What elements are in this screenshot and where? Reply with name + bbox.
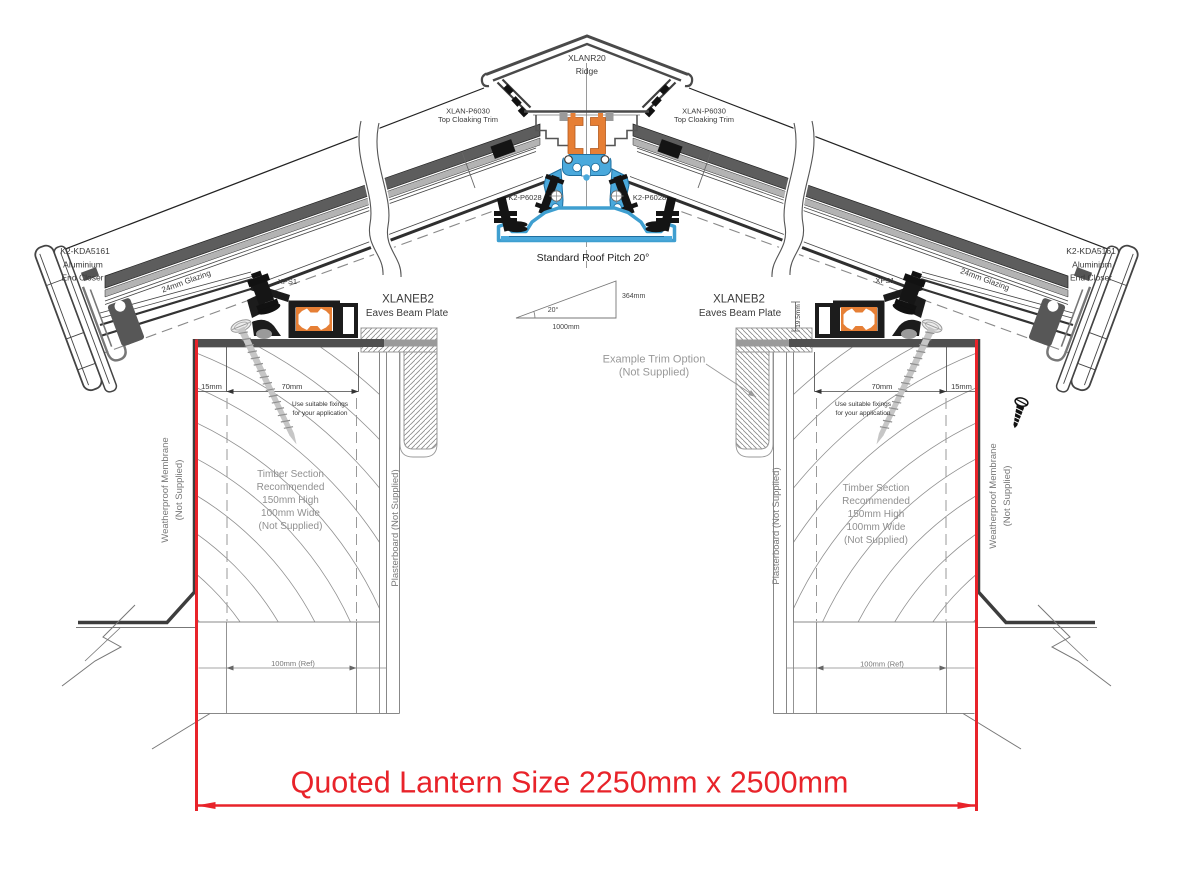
svg-text:End Closer: End Closer	[61, 273, 103, 283]
svg-text:150mm High: 150mm High	[262, 495, 319, 506]
svg-text:XLANEB2: XLANEB2	[713, 294, 765, 306]
svg-text:1000mm: 1000mm	[552, 324, 579, 331]
svg-text:150mm High: 150mm High	[848, 509, 905, 520]
svg-text:100mm Wide: 100mm Wide	[847, 522, 906, 533]
svg-text:Plasterboard (Not Supplied): Plasterboard (Not Supplied)	[771, 467, 782, 584]
svg-text:XLANR20: XLANR20	[568, 53, 606, 63]
svg-text:Top Cloaking Trim: Top Cloaking Trim	[674, 115, 734, 124]
svg-text:(Not Supplied): (Not Supplied)	[1002, 466, 1013, 527]
svg-text:K2-P6028: K2-P6028	[633, 193, 666, 202]
svg-text:(Not Supplied): (Not Supplied)	[619, 367, 689, 379]
svg-text:Timber Section: Timber Section	[843, 483, 910, 494]
svg-text:Aluminium: Aluminium	[63, 260, 103, 270]
svg-text:K2-P6028: K2-P6028	[508, 193, 541, 202]
svg-text:Weatherproof Membrane: Weatherproof Membrane	[988, 443, 999, 548]
svg-text:Recommended: Recommended	[842, 496, 910, 507]
svg-text:(Not Supplied): (Not Supplied)	[259, 521, 323, 532]
svg-text:Use suitable fixings: Use suitable fixings	[292, 401, 349, 408]
svg-text:K2-KDA5161: K2-KDA5161	[60, 246, 110, 256]
svg-text:Weatherproof Membrane: Weatherproof Membrane	[160, 437, 171, 542]
svg-text:Timber Section: Timber Section	[257, 469, 324, 480]
svg-text:15mm: 15mm	[951, 382, 972, 391]
svg-text:100mm (Ref): 100mm (Ref)	[271, 659, 315, 668]
svg-text:20°: 20°	[548, 306, 559, 314]
svg-text:100mm (Ref): 100mm (Ref)	[860, 660, 904, 669]
svg-text:XLANEB2: XLANEB2	[382, 294, 434, 306]
svg-text:Plasterboard (Not Supplied): Plasterboard (Not Supplied)	[390, 469, 401, 586]
svg-text:Eaves Beam Plate: Eaves Beam Plate	[366, 308, 449, 319]
svg-text:364mm: 364mm	[622, 293, 646, 300]
svg-text:100mm Wide: 100mm Wide	[261, 508, 320, 519]
svg-text:(Not Supplied): (Not Supplied)	[844, 535, 908, 546]
svg-text:70mm: 70mm	[282, 382, 303, 391]
svg-text:19.5mm: 19.5mm	[795, 304, 802, 327]
svg-text:Standard Roof Pitch 20°: Standard Roof Pitch 20°	[537, 252, 650, 264]
svg-text:for your application: for your application	[293, 410, 348, 417]
svg-text:End Closer: End Closer	[1070, 273, 1112, 283]
svg-text:Quoted Lantern Size 2250mm x 2: Quoted Lantern Size 2250mm x 2500mm	[291, 766, 849, 800]
svg-text:Recommended: Recommended	[257, 482, 325, 493]
svg-text:XPS1: XPS1	[278, 277, 297, 286]
svg-text:Example Trim Option: Example Trim Option	[603, 354, 706, 366]
svg-text:K2-KDA5161: K2-KDA5161	[1066, 246, 1116, 256]
svg-text:70mm: 70mm	[872, 382, 893, 391]
svg-text:Top Cloaking Trim: Top Cloaking Trim	[438, 115, 498, 124]
svg-text:for your application: for your application	[836, 410, 891, 417]
svg-text:Eaves Beam Plate: Eaves Beam Plate	[699, 308, 782, 319]
svg-text:Ridge: Ridge	[576, 66, 598, 76]
svg-text:XPS1: XPS1	[875, 276, 894, 285]
svg-text:Use suitable fixings: Use suitable fixings	[835, 401, 892, 408]
svg-text:(Not Supplied): (Not Supplied)	[174, 460, 185, 521]
svg-text:Aluminium: Aluminium	[1072, 260, 1112, 270]
svg-text:15mm: 15mm	[201, 382, 222, 391]
